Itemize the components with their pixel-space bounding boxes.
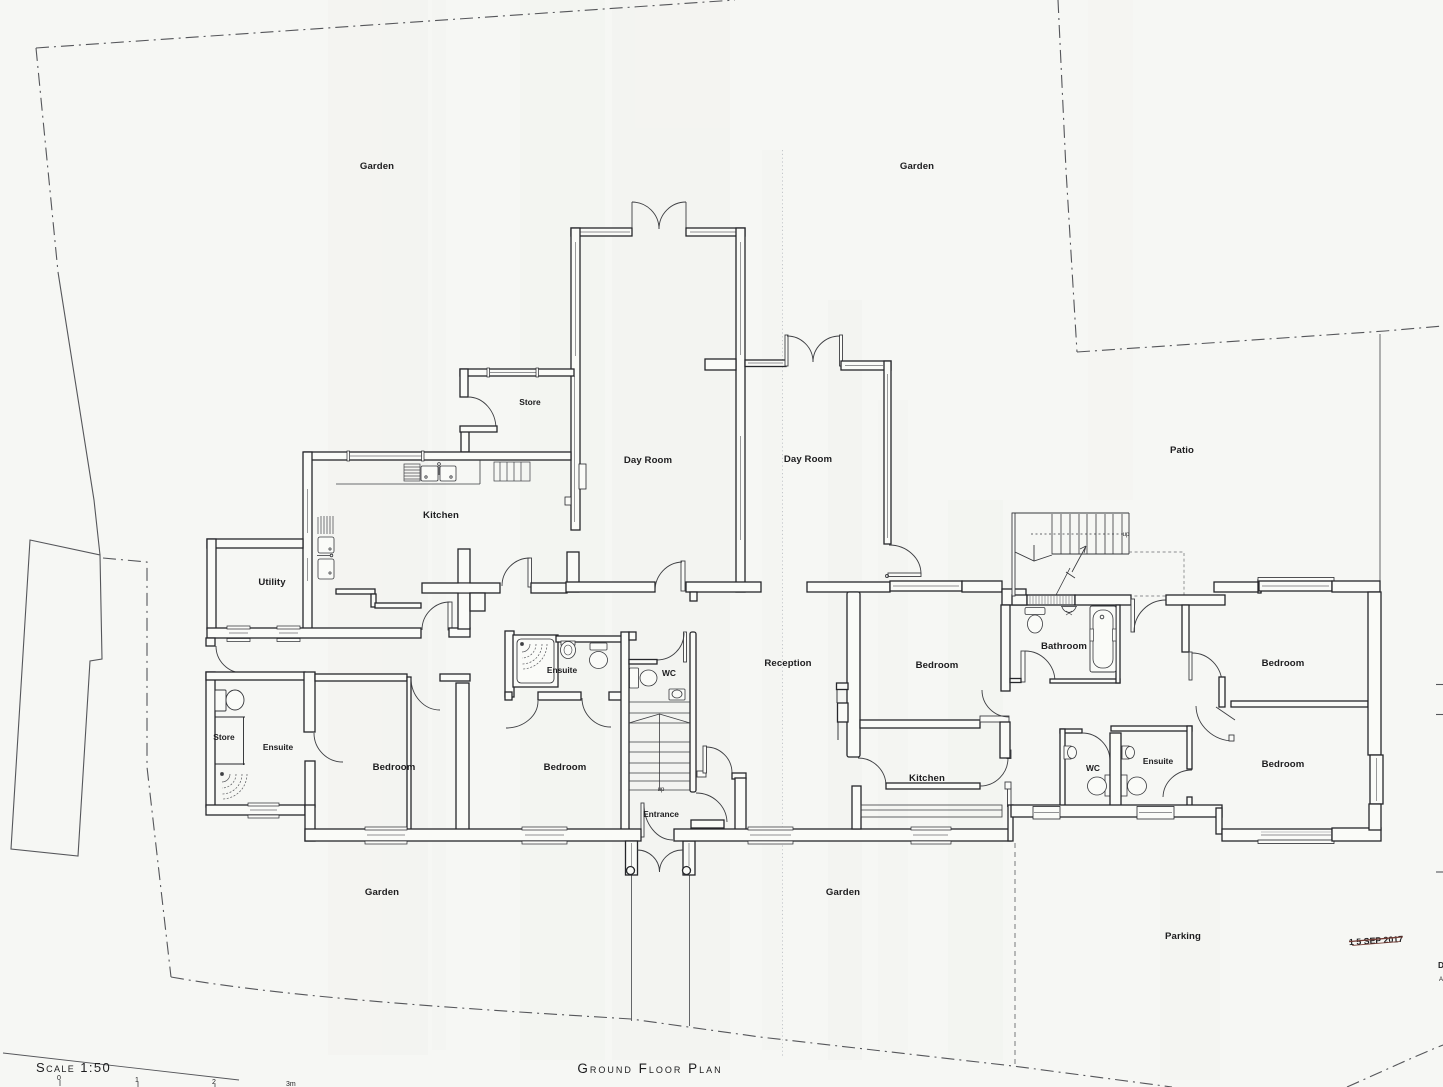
svg-text:Day Room: Day Room bbox=[784, 454, 832, 465]
svg-text:up: up bbox=[658, 787, 665, 793]
svg-text:up: up bbox=[1123, 532, 1130, 538]
svg-text:3m: 3m bbox=[286, 1081, 296, 1087]
svg-text:Patio: Patio bbox=[1170, 445, 1194, 456]
svg-text:D: D bbox=[1438, 960, 1443, 970]
svg-text:Bathroom: Bathroom bbox=[1041, 641, 1087, 652]
svg-text:Garden: Garden bbox=[360, 161, 394, 172]
svg-text:Utility: Utility bbox=[258, 577, 286, 588]
svg-text:Ensuite: Ensuite bbox=[1143, 756, 1174, 766]
svg-text:WC: WC bbox=[1086, 763, 1100, 773]
svg-text:Parking: Parking bbox=[1165, 931, 1201, 942]
svg-text:Day Room: Day Room bbox=[624, 455, 672, 466]
svg-text:Store: Store bbox=[519, 397, 541, 407]
svg-text:Reception: Reception bbox=[764, 658, 811, 669]
svg-text:Scale 1:50: Scale 1:50 bbox=[36, 1060, 111, 1075]
svg-text:Garden: Garden bbox=[826, 887, 860, 898]
svg-text:2: 2 bbox=[212, 1079, 216, 1086]
svg-text:Bedroom: Bedroom bbox=[1262, 658, 1305, 669]
svg-text:Bedroom: Bedroom bbox=[916, 660, 959, 671]
svg-text:Garden: Garden bbox=[365, 887, 399, 898]
svg-text:Bedroom: Bedroom bbox=[373, 762, 416, 773]
svg-text:Ensuite: Ensuite bbox=[263, 742, 294, 752]
svg-text:0: 0 bbox=[57, 1075, 61, 1082]
svg-text:1: 1 bbox=[135, 1077, 139, 1084]
svg-text:Store: Store bbox=[213, 732, 235, 742]
svg-text:WC: WC bbox=[662, 668, 676, 678]
svg-text:Bedroom: Bedroom bbox=[544, 762, 587, 773]
svg-text:Ground Floor Plan: Ground Floor Plan bbox=[577, 1061, 722, 1076]
svg-text:Kitchen: Kitchen bbox=[909, 773, 945, 784]
svg-text:A: A bbox=[1439, 977, 1443, 983]
svg-text:Ensuite: Ensuite bbox=[547, 665, 578, 675]
svg-text:Entrance: Entrance bbox=[643, 809, 679, 819]
svg-text:Kitchen: Kitchen bbox=[423, 510, 459, 521]
svg-text:Bedroom: Bedroom bbox=[1262, 759, 1305, 770]
svg-text:Garden: Garden bbox=[900, 161, 934, 172]
